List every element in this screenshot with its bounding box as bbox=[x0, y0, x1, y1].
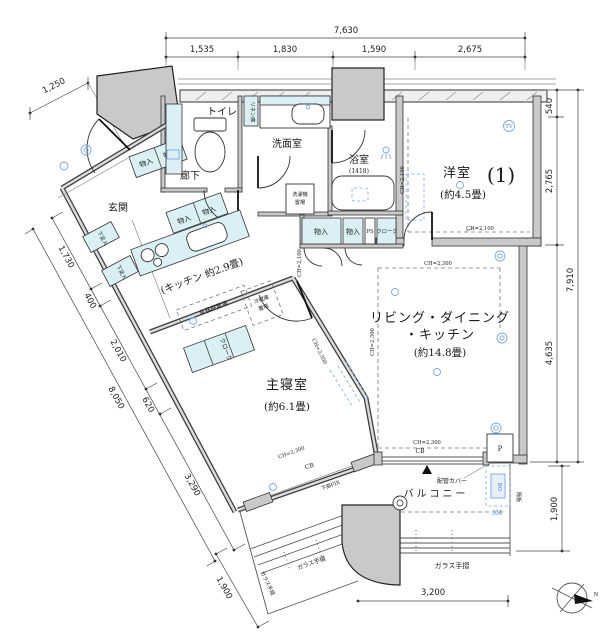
room-label-entrance: 玄関 bbox=[108, 201, 128, 214]
room-label-bath-size: (1418) bbox=[349, 168, 369, 175]
room-label-ldk-line2: ・キッチン bbox=[405, 328, 475, 343]
column-top-center bbox=[332, 68, 384, 120]
svg-text:TV: TV bbox=[505, 124, 512, 130]
label-ps: PS bbox=[366, 229, 373, 235]
dim-left-seg4: 620 bbox=[139, 396, 156, 415]
label-glass-rail-south: ガラス手摺 bbox=[435, 561, 470, 570]
label-monoire-row-1: 物入 bbox=[314, 227, 328, 236]
label-ch2100-hall: CH=2,100 bbox=[297, 249, 303, 277]
balcony-round-column bbox=[342, 505, 400, 585]
room-label-bedroom: 主寝室 bbox=[266, 377, 308, 393]
floor-plan-page: 7,630 1,535 1,830 1,590 2,675 540 2,765 … bbox=[0, 0, 612, 640]
dim-top-seg4: 2,675 bbox=[458, 45, 482, 55]
room-label-balcony: バルコニー bbox=[404, 488, 469, 500]
label-3m: 3M bbox=[492, 510, 502, 517]
dim-left-seg2: 400 bbox=[81, 292, 98, 311]
dim-right-seg3: 4,635 bbox=[545, 341, 555, 365]
label-monoire-row-2: 物入 bbox=[346, 227, 360, 236]
room-label-western: 洋室 bbox=[443, 165, 471, 181]
dim-left-seg5: 3,290 bbox=[181, 472, 202, 498]
label-glass-rail-edge: ガラス手摺 bbox=[259, 570, 278, 597]
bathroom: 浴室 (1418) bbox=[332, 130, 394, 210]
linen-closet: リネン庫 bbox=[244, 96, 258, 126]
room-label-washroom: 洗面室 bbox=[272, 137, 302, 150]
north-compass-icon: N bbox=[552, 583, 599, 613]
entry-triangle-marker bbox=[422, 465, 432, 474]
room-label-bedroom-size: (約6.1畳) bbox=[264, 400, 310, 413]
label-ch2300-bedroom-ne: CH=2,300 bbox=[310, 338, 328, 366]
dim-top-total: 7,630 bbox=[334, 26, 358, 36]
label-ch2300-ldk-top: CH=2,300 bbox=[424, 261, 452, 267]
label-washer-line2: 置場 bbox=[295, 198, 305, 206]
kitchen-area: (キッチン 約2.9畳) 食器棚置場 冷蔵庫 置場 bbox=[131, 210, 283, 331]
room-label-ldk-size: (約14.8畳) bbox=[414, 346, 467, 359]
room-label-western-no: (1) bbox=[487, 163, 515, 187]
label-glass-rail-sw: ガラス手摺 bbox=[296, 554, 327, 572]
label-ch2100-western-bottom: CH=2,100 bbox=[466, 226, 494, 232]
label-partition: 隔板 bbox=[515, 492, 523, 503]
ldk-south-window: CB P bbox=[374, 434, 513, 474]
dim-top-seg3: 1,590 bbox=[362, 45, 386, 55]
label-cb-bedroom: CB bbox=[304, 462, 315, 472]
label-north: N bbox=[594, 592, 599, 598]
tv-icon: TV bbox=[504, 121, 515, 132]
washroom: 洗面室 洗濯機 置場 bbox=[258, 96, 330, 214]
dimension-top: 7,630 1,535 1,830 1,590 2,675 bbox=[165, 26, 527, 70]
dim-left-top: 1,250 bbox=[41, 76, 67, 96]
room-label-toilet: トイレ bbox=[207, 107, 237, 118]
room-label-ldk-line1: リビング・ダイニング bbox=[370, 311, 510, 326]
storage-row: 物入 物入 PS クローク bbox=[302, 218, 397, 266]
room-label-bath: 浴室 bbox=[349, 153, 369, 166]
label-p: P bbox=[498, 445, 503, 453]
label-cupboard: 食器棚置場 bbox=[198, 299, 229, 317]
label-ch2100-western-left: CH=2,100 bbox=[400, 166, 406, 194]
dim-top-seg2: 1,830 bbox=[273, 45, 297, 55]
dim-bottom-width: 3,200 bbox=[421, 588, 445, 598]
label-cloak-hall: クローク bbox=[377, 228, 398, 235]
label-pipe-cover: 配管カバー bbox=[437, 477, 467, 485]
label-ch2300-ldk-bottom: CH=2,300 bbox=[413, 440, 441, 446]
room-label-western-size: (約4.5畳) bbox=[440, 188, 486, 201]
label-ch2300-ldk-left: CH=2,300 bbox=[370, 328, 376, 356]
label-bo: BO bbox=[496, 483, 502, 491]
label-washer-line1: 洗濯機 bbox=[292, 190, 308, 198]
dim-top-seg1: 1,535 bbox=[190, 45, 214, 55]
label-ch2300-bedroom-s: CH=2,300 bbox=[278, 446, 306, 461]
ldk-room: CH=2,300 CH=2,300 CH=2,300 リビング・ダイニング ・キ… bbox=[370, 251, 510, 450]
balcony-area: バルコニー 配管カバー BO 3M 隔板 ガラス手摺 ガラス手摺 ガラス手摺 bbox=[240, 463, 523, 614]
dim-left-balcony: 1,900 bbox=[213, 575, 234, 601]
label-cb-ldk: CB bbox=[416, 448, 426, 455]
room-label-hall: 廊下 bbox=[180, 169, 200, 182]
western-room: 洋室 (1) (約4.5畳) CH=2,100 CH=2,100 TV bbox=[400, 118, 530, 240]
floor-plan-drawing: 7,630 1,535 1,830 1,590 2,675 540 2,765 … bbox=[0, 0, 612, 640]
label-linen: リネン庫 bbox=[249, 102, 257, 123]
dim-left-seg1: 1,730 bbox=[55, 244, 76, 270]
dim-right-seg2: 2,765 bbox=[545, 169, 555, 193]
dim-left-total: 8,050 bbox=[105, 385, 126, 411]
dimension-bottom: 3,200 bbox=[357, 588, 510, 607]
dim-right-balcony: 1,900 bbox=[550, 497, 560, 521]
dim-right-total: 7,910 bbox=[566, 268, 576, 292]
